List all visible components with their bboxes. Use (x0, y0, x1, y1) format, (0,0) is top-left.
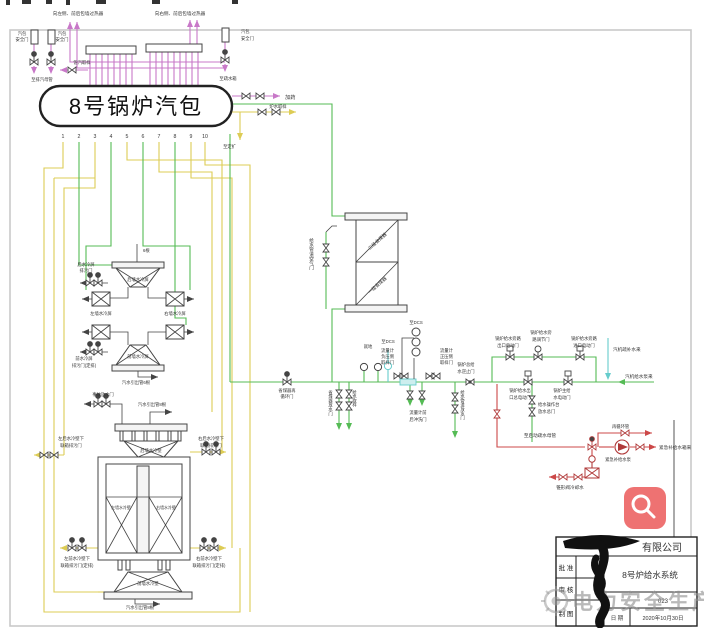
svg-text:炉水取样: 炉水取样 (269, 103, 287, 110)
svg-text:联箱排污门: 联箱排污门 (200, 442, 221, 449)
svg-text:取样门: 取样门 (381, 359, 394, 366)
svg-text:批 准: 批 准 (559, 563, 574, 572)
svg-text:日 期: 日 期 (611, 615, 624, 622)
svg-text:放水总门: 放水总门 (538, 408, 555, 415)
svg-text:紧急补给水箱来: 紧急补给水箱来 (659, 444, 692, 451)
svg-text:前墙水冷壁: 前墙水冷壁 (137, 580, 159, 587)
cropped-text-remnants (6, 0, 238, 5)
svg-text:饱汽取样: 饱汽取样 (73, 59, 91, 66)
svg-text:锥形阀冷却水: 锥形阀冷却水 (556, 484, 584, 491)
svg-text:右前水冷壁下: 右前水冷壁下 (196, 555, 222, 562)
svg-text:左墙水冷壁: 左墙水冷壁 (111, 505, 131, 510)
svg-text:2: 2 (78, 134, 81, 140)
svg-text:7: 7 (158, 134, 161, 140)
svg-text:事故放水门: 事故放水门 (92, 391, 113, 398)
svg-text:联箱排污门(定排): 联箱排污门(定排) (61, 562, 95, 569)
svg-text:安全门: 安全门 (16, 36, 29, 43)
company-name: 有限公司 (642, 541, 682, 554)
svg-text:后墙水冷屏: 后墙水冷屏 (127, 276, 149, 283)
svg-text:安全门: 安全门 (56, 36, 69, 43)
svg-text:至疏水箱: 至疏水箱 (219, 75, 237, 82)
svg-text:至启动疏水母管: 至启动疏水母管 (524, 432, 557, 439)
svg-text:左后水冷壁下: 左后水冷壁下 (58, 435, 84, 442)
svg-text:6: 6 (142, 134, 145, 140)
svg-text:加药: 加药 (285, 93, 295, 101)
svg-text:省煤器放水门: 省煤器放水门 (328, 389, 334, 417)
svg-text:正压侧: 正压侧 (440, 353, 453, 360)
svg-text:口总电动门: 口总电动门 (509, 394, 530, 401)
diagram-page: 8号锅炉汽包 1 2 3 4 5 6 7 8 9 10 向左侧、前后包墙过热器 … (0, 0, 704, 628)
svg-text:给水管道放水门: 给水管道放水门 (460, 389, 466, 422)
boiler-feedwater-diagram: 8号锅炉汽包 1 2 3 4 5 6 7 8 9 10 向左侧、前后包墙过热器 … (0, 0, 704, 628)
svg-text:水逆止门: 水逆止门 (457, 368, 474, 375)
svg-text:取样门: 取样门 (440, 359, 453, 366)
zoom-button[interactable] (624, 487, 666, 529)
svg-text:3: 3 (94, 134, 97, 140)
svg-text:4: 4 (110, 134, 113, 140)
svg-text:汽水引出管6根: 汽水引出管6根 (122, 379, 151, 386)
svg-text:汽机给水泵来: 汽机给水泵来 (625, 373, 653, 380)
svg-text:后墙水冷壁: 后墙水冷壁 (140, 447, 162, 454)
svg-text:右墙水冷壁: 右墙水冷壁 (156, 505, 176, 510)
svg-text:水电动门: 水电动门 (553, 394, 570, 401)
svg-text:进口电动门: 进口电动门 (573, 342, 594, 349)
svg-text:8: 8 (174, 134, 177, 140)
svg-text:左前水冷壁下: 左前水冷壁下 (64, 555, 90, 562)
svg-text:锅炉给水旁: 锅炉给水旁 (530, 329, 552, 336)
svg-text:至DCS: 至DCS (409, 320, 423, 325)
svg-text:锅炉给水旁路: 锅炉给水旁路 (571, 335, 597, 342)
svg-text:6根: 6根 (143, 247, 150, 254)
svg-text:给水取样: 给水取样 (352, 389, 358, 409)
svg-text:流量计前: 流量计前 (409, 409, 427, 416)
svg-text:向右侧、前后包墙过热器: 向右侧、前后包墙过热器 (155, 10, 206, 17)
drum-title: 8号锅炉汽包 (69, 94, 203, 119)
svg-text:给水管道空气门: 给水管道空气门 (309, 237, 315, 272)
svg-text:后冲洗门: 后冲洗门 (409, 416, 426, 423)
svg-text:汽机疏补水来: 汽机疏补水来 (613, 346, 641, 353)
svg-text:负压侧: 负压侧 (381, 353, 394, 360)
drawing-date: 2020年10月30日 (643, 614, 684, 622)
svg-text:汽包: 汽包 (241, 28, 250, 34)
svg-text:向左侧、前后包墙过热器: 向左侧、前后包墙过热器 (53, 10, 104, 17)
svg-text:联箱排污门: 联箱排污门 (60, 442, 81, 449)
svg-text:锅炉给水出: 锅炉给水出 (509, 387, 530, 394)
svg-text:汽水引出管8根: 汽水引出管8根 (138, 401, 167, 408)
svg-text:锅炉总给: 锅炉总给 (457, 361, 475, 368)
drawing-title: 8号炉给水系统 (622, 570, 678, 580)
svg-text:至排汽母管: 至排汽母管 (31, 76, 53, 83)
svg-text:前水冷屏: 前水冷屏 (75, 355, 93, 362)
svg-text:左墙水冷屏: 左墙水冷屏 (90, 310, 112, 317)
svg-text:9: 9 (190, 134, 193, 140)
watermark-text: 电力安全生产 (572, 590, 704, 614)
svg-text:路调节门: 路调节门 (532, 336, 549, 343)
svg-text:锅炉给水旁路: 锅炉给水旁路 (495, 335, 521, 342)
svg-text:右墙水冷屏: 右墙水冷屏 (164, 310, 186, 317)
svg-text:汽水引出管8根: 汽水引出管8根 (126, 604, 155, 611)
svg-text:后水冷屏: 后水冷屏 (77, 261, 95, 268)
svg-text:出口电动门: 出口电动门 (497, 342, 518, 349)
svg-text:流量计: 流量计 (440, 347, 454, 354)
svg-text:再循环管: 再循环管 (612, 423, 630, 430)
svg-text:10: 10 (202, 134, 208, 140)
svg-text:排污门(定排): 排污门(定排) (72, 362, 97, 369)
svg-text:锅炉主给: 锅炉主给 (553, 387, 571, 394)
svg-text:排污门: 排污门 (80, 267, 93, 274)
emergency-pump (615, 440, 629, 454)
svg-text:至定扩: 至定扩 (223, 143, 237, 150)
svg-text:1: 1 (62, 134, 65, 140)
svg-text:循环门: 循环门 (281, 393, 294, 400)
svg-text:5: 5 (126, 134, 129, 140)
svg-text:至DCS: 至DCS (381, 339, 395, 344)
svg-text:给水操作台: 给水操作台 (538, 401, 559, 408)
svg-text:就地: 就地 (364, 343, 373, 350)
svg-text:紧急补给水泵: 紧急补给水泵 (605, 456, 631, 463)
svg-text:联箱排污门(定排): 联箱排污门(定排) (193, 562, 227, 569)
svg-text:右后水冷壁下: 右后水冷壁下 (198, 435, 224, 442)
svg-text:省煤器再: 省煤器再 (278, 387, 296, 394)
svg-text:流量计: 流量计 (381, 347, 395, 354)
svg-text:汽包: 汽包 (18, 30, 27, 36)
svg-text:汽包: 汽包 (58, 30, 67, 36)
svg-text:安全门: 安全门 (241, 35, 254, 42)
svg-text:前墙水冷屏: 前墙水冷屏 (127, 353, 149, 360)
